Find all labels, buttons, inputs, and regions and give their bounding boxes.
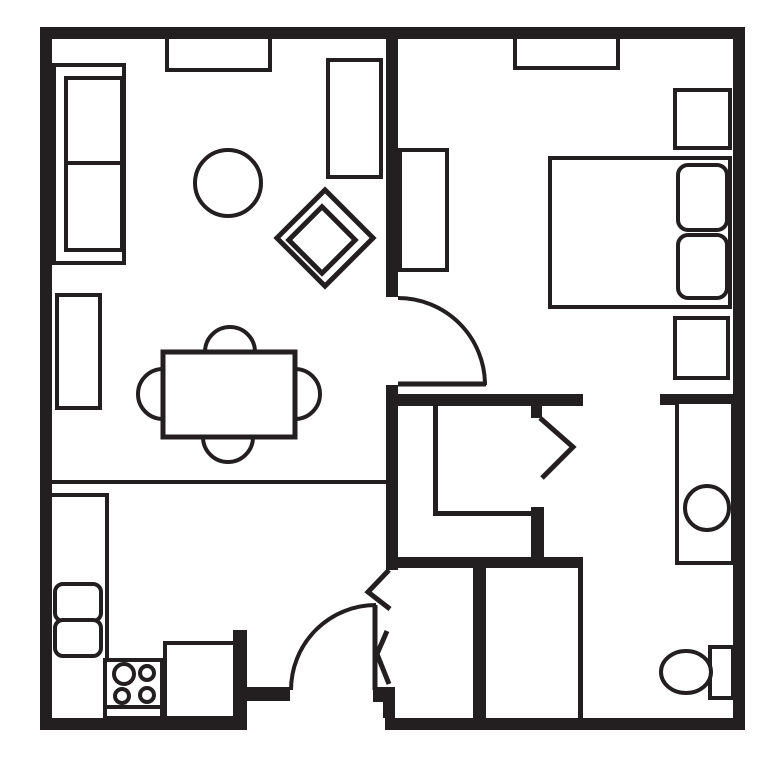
- entry-closet-left-wall: [473, 568, 486, 718]
- sofa-cushion-divider: [66, 161, 122, 165]
- bathroom-vanity: [677, 402, 733, 563]
- floor-plan-drawing: [0, 0, 779, 765]
- kitchen-sink-lower-basin: [55, 620, 101, 656]
- hall-left-wall: [386, 385, 398, 570]
- outer-wall-top: [40, 27, 745, 39]
- toilet-bowl: [661, 651, 711, 693]
- hall-closet-wall-left: [433, 406, 438, 516]
- media-cabinet: [328, 60, 381, 177]
- bedroom-window: [515, 37, 618, 68]
- floor-plan: [0, 0, 779, 765]
- bedroom-dresser: [400, 150, 447, 270]
- kitchen-counter-edge-top: [52, 493, 109, 497]
- nightstand-lower: [675, 318, 728, 378]
- living-room-window: [167, 37, 270, 70]
- hall-bottom-wall: [386, 557, 583, 568]
- outer-wall-right: [733, 27, 745, 730]
- outer-wall-bottom-right: [385, 718, 745, 730]
- dishwasher-cabinet: [165, 643, 235, 718]
- bedroom-divider-wall: [386, 39, 398, 297]
- entry-corner-wall: [383, 702, 395, 718]
- sideboard: [57, 295, 100, 408]
- stove-front-divider: [105, 705, 162, 709]
- bed-pillow-lower: [678, 235, 727, 298]
- bed-pillow-upper: [678, 165, 727, 230]
- bathroom-vanity-sink: [685, 486, 729, 530]
- stove-burner-top-left: [114, 664, 134, 684]
- kitchen-sink-upper-basin: [55, 584, 101, 621]
- kitchen-entry-wall-horizontal: [233, 687, 290, 701]
- nightstand-upper: [675, 90, 730, 148]
- hall-top-wall: [386, 394, 583, 406]
- outer-wall-left: [40, 27, 52, 730]
- entry-closet-right-wall: [578, 568, 583, 718]
- stove-burner-bottom-left: [115, 689, 129, 703]
- hall-closet-door-jamb: [531, 406, 542, 418]
- toilet-tank: [710, 647, 733, 698]
- round-side-table: [195, 150, 261, 216]
- hall-closet-wall-bottom: [433, 511, 532, 516]
- entry-closet-door-lower: [377, 631, 389, 684]
- stove-burner-bottom-right: [140, 688, 154, 702]
- dining-table: [163, 352, 295, 437]
- stove-burner-top-right: [140, 666, 154, 680]
- bedroom-door-swing: [398, 298, 485, 385]
- front-door-swing: [291, 605, 376, 690]
- hall-closet-door: [540, 418, 573, 478]
- kitchen-counter-edge-right: [105, 493, 109, 660]
- kitchen-divider-line: [52, 480, 386, 484]
